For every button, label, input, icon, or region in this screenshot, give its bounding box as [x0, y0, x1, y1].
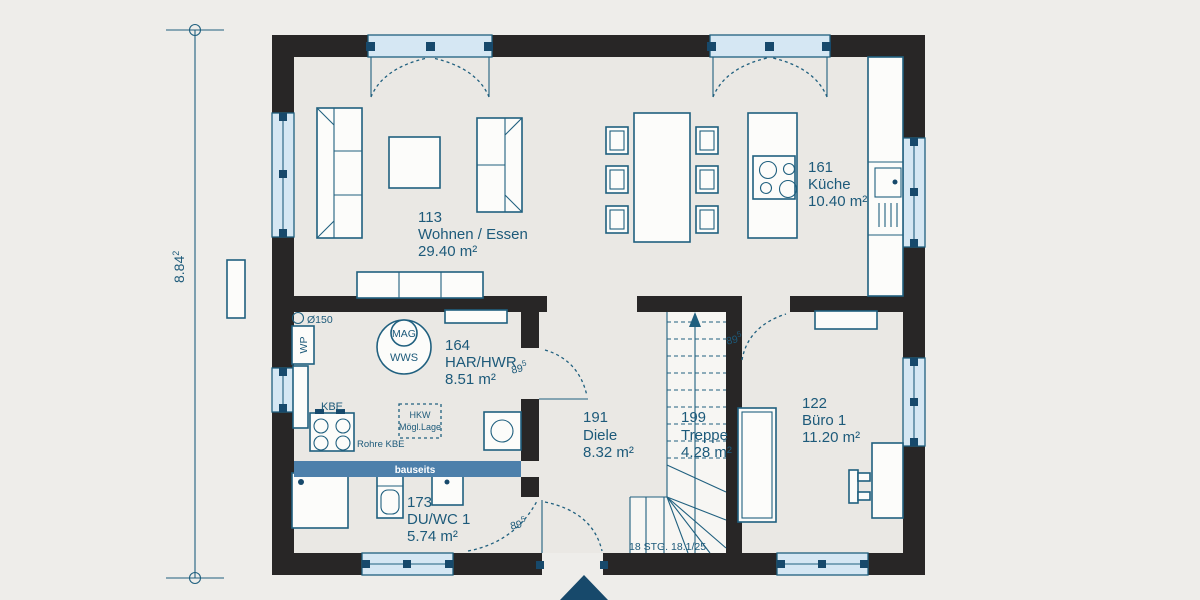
shower-icon	[292, 473, 348, 528]
mag-label: MAG	[392, 328, 416, 340]
window-office-bottom	[777, 553, 868, 575]
room-number: 122	[802, 395, 827, 412]
window-office-right	[903, 358, 925, 446]
window-utility-left	[272, 368, 294, 412]
dimension-line: 8.842	[166, 25, 224, 584]
room-area: 5.74 m²	[407, 528, 458, 545]
coffee-table	[389, 137, 440, 188]
office-shelf	[815, 311, 877, 329]
kbe-label: KBE	[321, 401, 343, 413]
kbe-manifold-icon	[310, 409, 354, 451]
furniture-dining	[606, 113, 718, 242]
hkw-label-line1: HKW	[410, 410, 432, 420]
toilet-icon	[377, 473, 403, 518]
room-area: 11.20 m²	[802, 429, 860, 446]
room-name: DU/WC 1	[407, 511, 470, 528]
room-number: 199	[681, 409, 706, 426]
room-number: 191	[583, 409, 608, 426]
window-kitchen-right	[903, 138, 925, 247]
sofa-large	[317, 108, 362, 238]
room-number: 173	[407, 494, 432, 511]
stair-note: 18 STG. 18.1/25	[629, 541, 706, 553]
washing-machine-icon	[484, 412, 521, 450]
room-name: Diele	[583, 427, 617, 444]
hkw-label-line2: Mögl.Lage	[399, 422, 441, 432]
kitchen-counter	[868, 57, 903, 296]
entry-arrow-icon	[560, 575, 608, 600]
room-name: Küche	[808, 176, 851, 193]
room-number: 164	[445, 337, 470, 354]
office-desk	[872, 443, 903, 518]
floor-plan: bauseits 8.842 113 Wohnen / Essen 29.40 …	[0, 0, 1200, 600]
room-number: 161	[808, 159, 833, 176]
room-name: Büro 1	[802, 412, 846, 429]
room-area: 4.28 m²	[681, 444, 732, 461]
tank-unit	[293, 366, 308, 428]
room-area: 8.32 m²	[583, 444, 634, 461]
duct-label: Ø150	[307, 314, 333, 326]
office-daybed	[738, 408, 776, 522]
room-area: 29.40 m²	[418, 243, 477, 260]
bauseits-label: bauseits	[395, 465, 436, 476]
wws-label: WWS	[390, 352, 418, 364]
window-bath-bottom	[362, 553, 453, 575]
bauseits-partition: bauseits	[294, 461, 521, 477]
room-name: Wohnen / Essen	[418, 226, 528, 243]
shelf-utility	[445, 310, 507, 323]
window-living-left	[272, 113, 294, 237]
room-number: 113	[418, 209, 442, 226]
room-name: Treppe	[681, 427, 728, 444]
sideboard	[357, 272, 483, 298]
dining-table	[634, 113, 690, 242]
heat-pump-label: WP	[298, 337, 310, 354]
washbasin-icon	[432, 474, 463, 505]
rohre-kbe-label: Rohre KBE	[357, 439, 405, 450]
room-name: HAR/HWR	[445, 354, 517, 371]
cooktop-icon	[753, 156, 797, 199]
room-area: 10.40 m²	[808, 193, 867, 210]
sofa-small	[477, 118, 522, 212]
dimension-label: 8.842	[171, 251, 187, 283]
room-area: 8.51 m²	[445, 371, 496, 388]
outdoor-unit	[227, 260, 245, 318]
